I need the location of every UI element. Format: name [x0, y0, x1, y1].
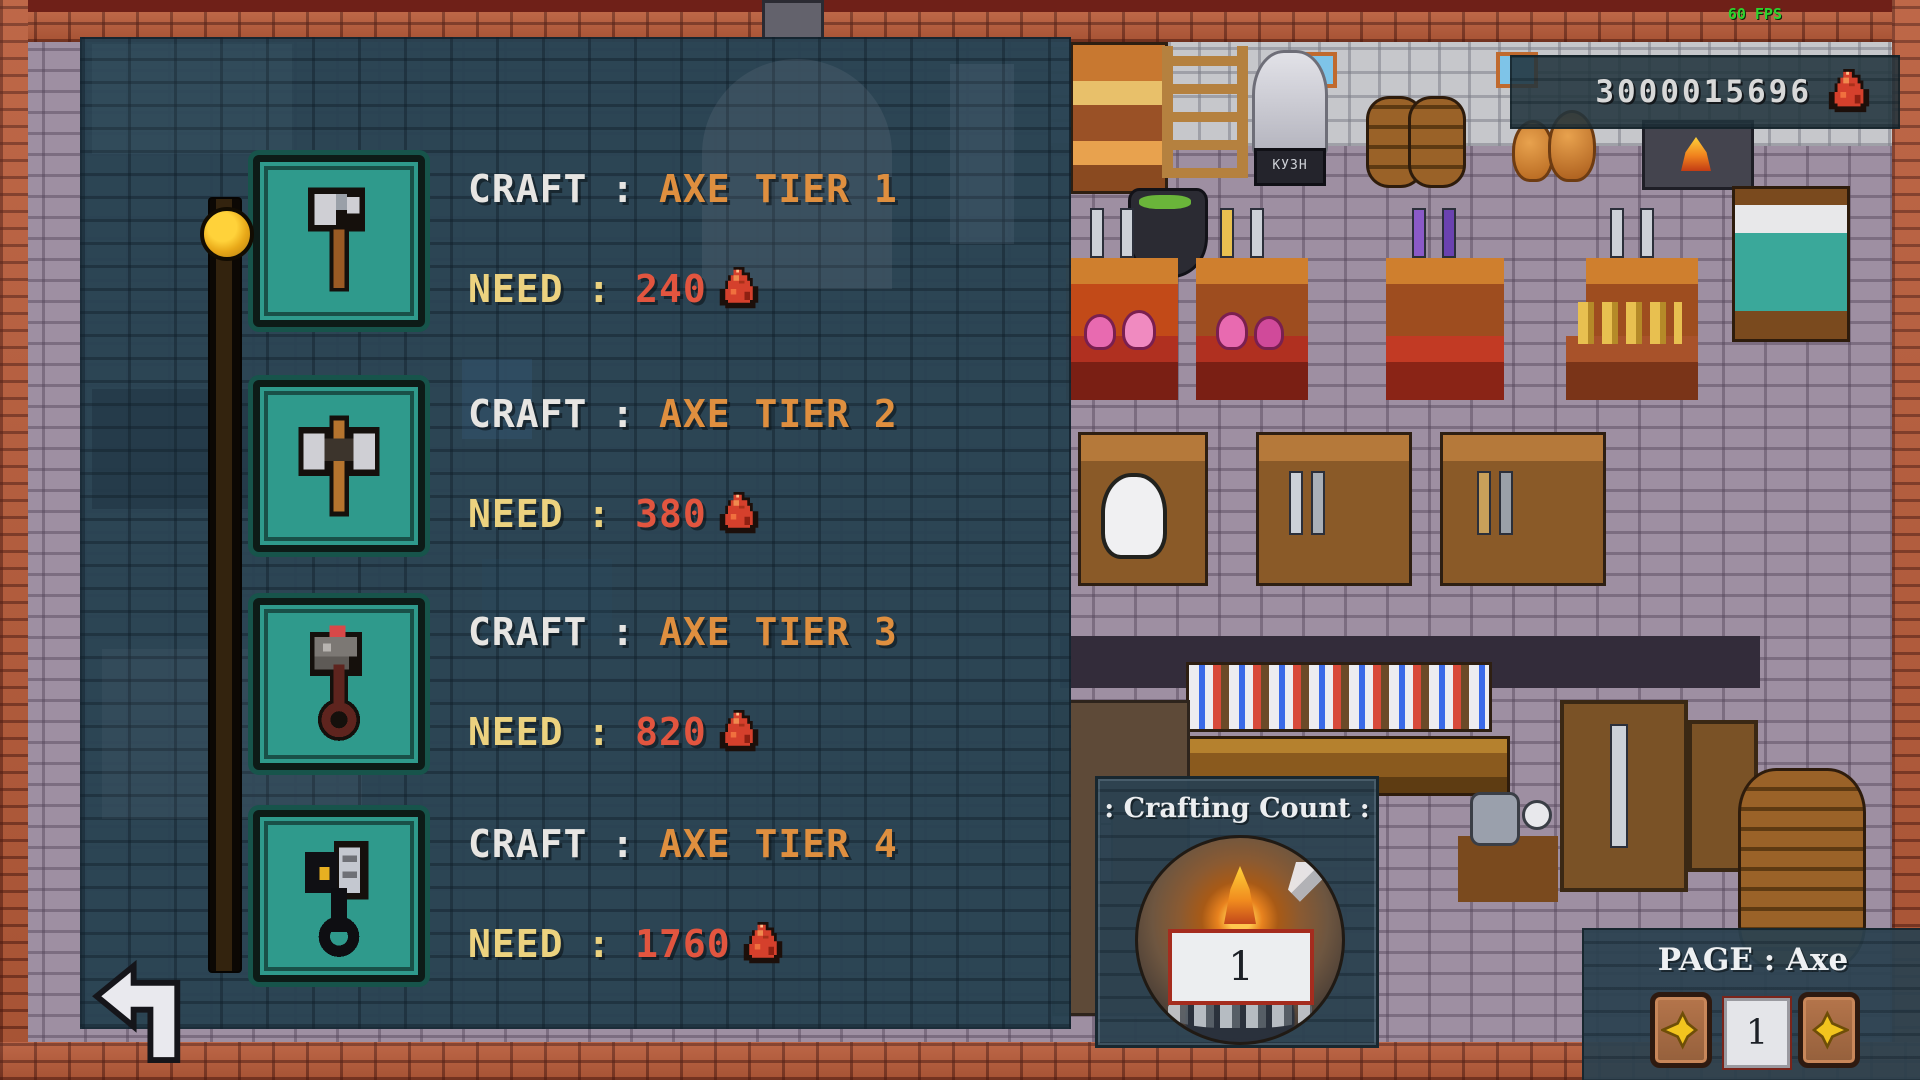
potion	[1254, 316, 1284, 350]
red-ore-icon	[717, 710, 761, 754]
axe-tier-1-icon	[274, 176, 404, 306]
craft-item-button-axe-tier-3[interactable]	[253, 598, 425, 770]
barrel	[1408, 96, 1466, 188]
tool-bench	[1440, 432, 1606, 586]
panel-silhouette	[950, 64, 1014, 244]
fps-counter: 60 FPS	[1728, 5, 1782, 23]
crafting-count-input[interactable]: 1	[1168, 929, 1314, 1005]
page-title: PAGE : Axe	[1584, 942, 1920, 978]
potion	[1122, 310, 1156, 350]
book-shelf	[1186, 662, 1492, 732]
currency-panel: 3000015696	[1510, 55, 1900, 129]
wheat-sheaves	[1578, 302, 1682, 344]
axe-tier-3-icon	[274, 619, 404, 749]
red-ore-icon	[1826, 69, 1872, 115]
need-label: NEED : 820	[468, 710, 761, 754]
craft-item-name: AXE TIER 2	[659, 392, 898, 436]
armor-chestplate	[1470, 792, 1520, 846]
potion-table	[1196, 336, 1308, 400]
red-ore-icon	[741, 922, 785, 966]
forge-flame-icon	[1224, 866, 1256, 924]
bakery-shelf	[1070, 42, 1168, 194]
need-amount: 240	[635, 267, 707, 311]
potion-table	[1066, 336, 1178, 400]
crafting-count-title: : Crafting Count :	[1098, 793, 1376, 824]
need-label: NEED : 240	[468, 267, 761, 311]
left-border	[0, 0, 28, 1080]
currency-amount: 3000015696	[1595, 74, 1812, 110]
craft-item-name: AXE TIER 4	[659, 822, 898, 866]
axe-tier-4-icon	[274, 831, 404, 961]
bed	[1732, 186, 1850, 342]
right-border	[1892, 0, 1920, 1080]
red-table	[1386, 336, 1504, 400]
hooded-statue	[1252, 50, 1328, 156]
craft-list-scrollbar[interactable]	[208, 197, 242, 973]
craft-label: CRAFT : AXE TIER 2	[468, 392, 898, 436]
need-amount: 1760	[635, 922, 731, 966]
craft-prefix: CRAFT :	[468, 167, 659, 211]
need-prefix: NEED :	[468, 922, 635, 966]
skull	[1522, 800, 1552, 830]
weapon-display-table	[1196, 206, 1308, 336]
armor-stand	[1458, 790, 1558, 902]
need-amount: 380	[635, 492, 707, 536]
craft-label: CRAFT : AXE TIER 3	[468, 610, 898, 654]
craft-panel: CRAFT : AXE TIER 1 NEED : 240 CRAFT : AX…	[80, 37, 1071, 1029]
red-ore-icon	[717, 267, 761, 311]
fire-flame	[1681, 137, 1711, 171]
page-number: 1	[1724, 998, 1790, 1068]
hearth	[1642, 120, 1754, 190]
scrollbar-knob[interactable]	[200, 207, 254, 261]
need-label: NEED : 1760	[468, 922, 785, 966]
potion	[1084, 314, 1116, 350]
arrow-right-icon	[1809, 1010, 1849, 1050]
forge-sign: КУЗН	[1254, 148, 1326, 186]
need-prefix: NEED :	[468, 267, 635, 311]
workbench	[1256, 432, 1412, 586]
craft-item-button-axe-tier-2[interactable]	[253, 380, 425, 552]
craft-label: CRAFT : AXE TIER 1	[468, 167, 898, 211]
glove-sign	[1101, 473, 1167, 559]
need-prefix: NEED :	[468, 710, 635, 754]
craft-item-button-axe-tier-1[interactable]	[253, 155, 425, 327]
panel-silhouette	[92, 44, 292, 154]
workbench	[1078, 432, 1208, 586]
page-panel: PAGE : Axe 1	[1582, 928, 1920, 1080]
page-prev-button[interactable]	[1650, 992, 1712, 1068]
need-label: NEED : 380	[468, 492, 761, 536]
craft-item-name: AXE TIER 1	[659, 167, 898, 211]
craft-prefix: CRAFT :	[468, 610, 659, 654]
red-ore-icon	[717, 492, 761, 536]
sword-board	[1560, 700, 1688, 892]
craft-item-name: AXE TIER 3	[659, 610, 898, 654]
axe-tier-2-icon	[274, 401, 404, 531]
ladder	[1162, 46, 1248, 178]
hammer-icon	[1288, 862, 1328, 908]
craft-label: CRAFT : AXE TIER 4	[468, 822, 898, 866]
craft-prefix: CRAFT :	[468, 392, 659, 436]
crafting-count-popup: : Crafting Count : 1	[1095, 776, 1379, 1048]
arrow-left-icon	[1661, 1010, 1701, 1050]
back-button[interactable]	[90, 956, 184, 1060]
book-display-table	[1386, 206, 1504, 336]
craft-item-button-axe-tier-4[interactable]	[253, 810, 425, 982]
weapon-display-table	[1066, 206, 1178, 336]
need-prefix: NEED :	[468, 492, 635, 536]
chimney	[762, 0, 824, 40]
page-next-button[interactable]	[1798, 992, 1860, 1068]
wheat-table	[1566, 336, 1698, 400]
game-screen: КУЗН	[0, 0, 1920, 1080]
back-arrow-icon	[90, 956, 184, 1063]
craft-prefix: CRAFT :	[468, 822, 659, 866]
potion	[1216, 312, 1248, 350]
need-amount: 820	[635, 710, 707, 754]
